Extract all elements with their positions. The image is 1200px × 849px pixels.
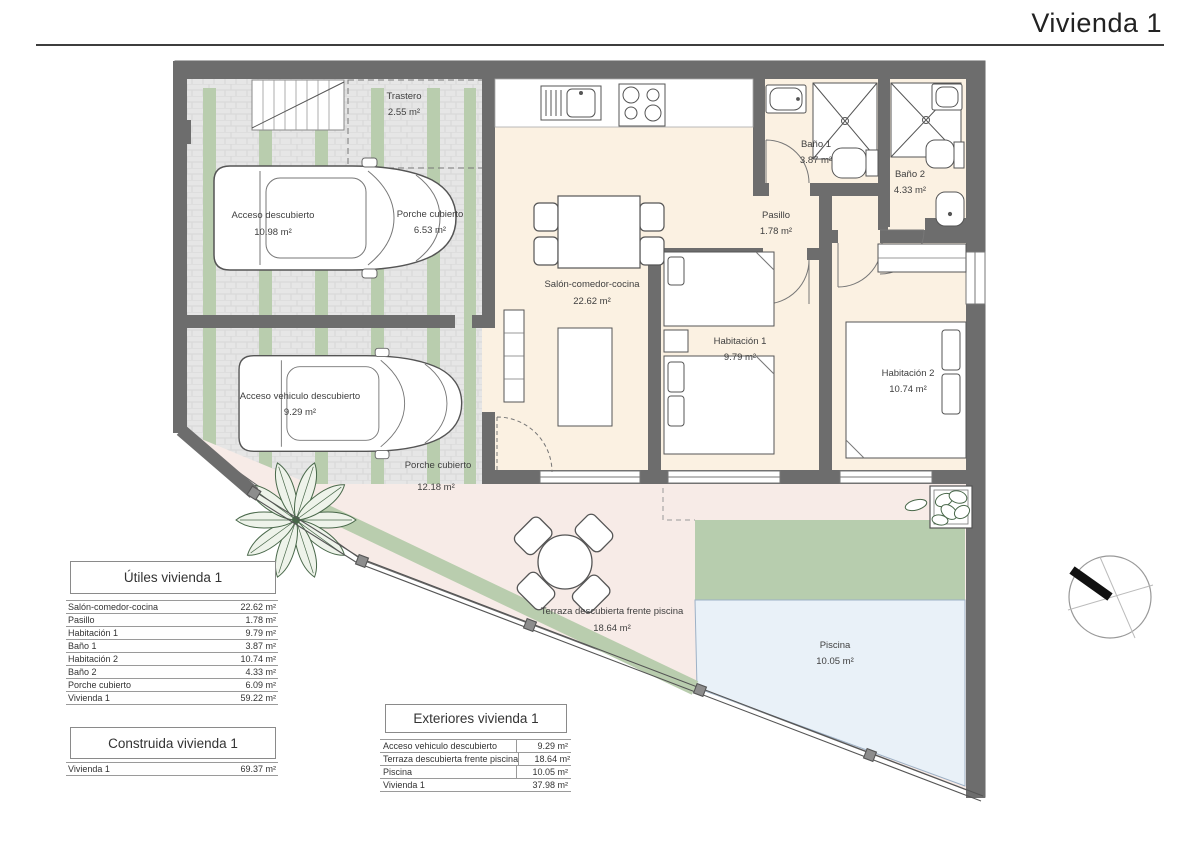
north-compass-icon — [1068, 556, 1153, 638]
drawing-sheet: Vivienda 1 — [0, 0, 1200, 849]
table-row: Acceso vehiculo descubierto9.29 m² — [380, 740, 571, 753]
table-row: Vivienda 159.22 m² — [66, 692, 278, 705]
table-row: Baño 24.33 m² — [66, 666, 278, 679]
table-row: Habitación 19.79 m² — [66, 627, 278, 640]
svg-text:10.74 m²: 10.74 m² — [889, 384, 927, 395]
sofa-icon — [558, 328, 612, 426]
pool — [695, 600, 965, 786]
svg-text:9.79 m²: 9.79 m² — [724, 352, 756, 363]
construida-table: Vivienda 169.37 m² — [66, 762, 278, 776]
lawn — [695, 520, 965, 600]
svg-text:Baño 1: Baño 1 — [801, 139, 831, 150]
svg-text:9.29 m²: 9.29 m² — [284, 407, 316, 418]
utiles-table-title: Útiles vivienda 1 — [70, 561, 276, 594]
utiles-table: Salón-comedor-cocina22.62 m² Pasillo1.78… — [66, 600, 278, 705]
car-icon — [239, 348, 462, 458]
stove-icon — [619, 84, 665, 126]
svg-text:10.05 m²: 10.05 m² — [816, 656, 854, 667]
table-row: Piscina10.05 m² — [380, 766, 571, 779]
table-row: Pasillo1.78 m² — [66, 614, 278, 627]
table-row: Baño 13.87 m² — [66, 640, 278, 653]
svg-text:Trastero: Trastero — [386, 91, 421, 102]
svg-text:2.55 m²: 2.55 m² — [388, 107, 420, 118]
svg-text:Piscina: Piscina — [820, 640, 851, 651]
svg-text:22.62 m²: 22.62 m² — [573, 296, 611, 307]
construida-table-title: Construida vivienda 1 — [70, 727, 276, 759]
exteriores-table: Acceso vehiculo descubierto9.29 m² Terra… — [380, 739, 571, 792]
svg-text:Pasillo: Pasillo — [762, 210, 790, 221]
svg-text:6.53 m²: 6.53 m² — [414, 225, 446, 236]
table-row: Vivienda 137.98 m² — [380, 779, 571, 792]
floor-plan: Trastero 2.55 m² Acceso descubierto 10.9… — [0, 0, 1200, 849]
svg-text:3.87 m²: 3.87 m² — [800, 155, 832, 166]
table-row: Salón-comedor-cocina22.62 m² — [66, 601, 278, 614]
table-row: Habitación 210.74 m² — [66, 653, 278, 666]
table-row: Terraza descubierta frente piscina18.64 … — [380, 753, 571, 766]
svg-text:Terraza descubierta frente pis: Terraza descubierta frente piscina — [541, 606, 684, 617]
svg-text:12.18 m²: 12.18 m² — [417, 482, 455, 493]
svg-text:Salón-comedor-cocina: Salón-comedor-cocina — [544, 279, 640, 290]
table-row: Vivienda 169.37 m² — [66, 763, 278, 776]
svg-text:10.98 m²: 10.98 m² — [254, 227, 292, 238]
svg-text:Acceso vehiculo descubierto: Acceso vehiculo descubierto — [240, 391, 360, 402]
svg-text:Porche cubierto: Porche cubierto — [405, 460, 472, 471]
exteriores-table-title: Exteriores vivienda 1 — [385, 704, 567, 733]
wardrobe-icon — [878, 244, 966, 272]
svg-text:Habitación 1: Habitación 1 — [714, 336, 767, 347]
svg-text:Porche cubierto: Porche cubierto — [397, 209, 464, 220]
table-row: Porche cubierto6.09 m² — [66, 679, 278, 692]
svg-text:18.64 m²: 18.64 m² — [593, 623, 631, 634]
svg-text:Baño 2: Baño 2 — [895, 169, 925, 180]
svg-text:Habitación 2: Habitación 2 — [882, 368, 935, 379]
shelf-icon — [504, 310, 524, 402]
staircase-icon — [252, 80, 344, 130]
svg-text:Acceso descubierto: Acceso descubierto — [232, 210, 315, 221]
kitchen-sink-icon — [541, 86, 601, 120]
svg-text:1.78 m²: 1.78 m² — [760, 226, 792, 237]
svg-text:4.33 m²: 4.33 m² — [894, 185, 926, 196]
